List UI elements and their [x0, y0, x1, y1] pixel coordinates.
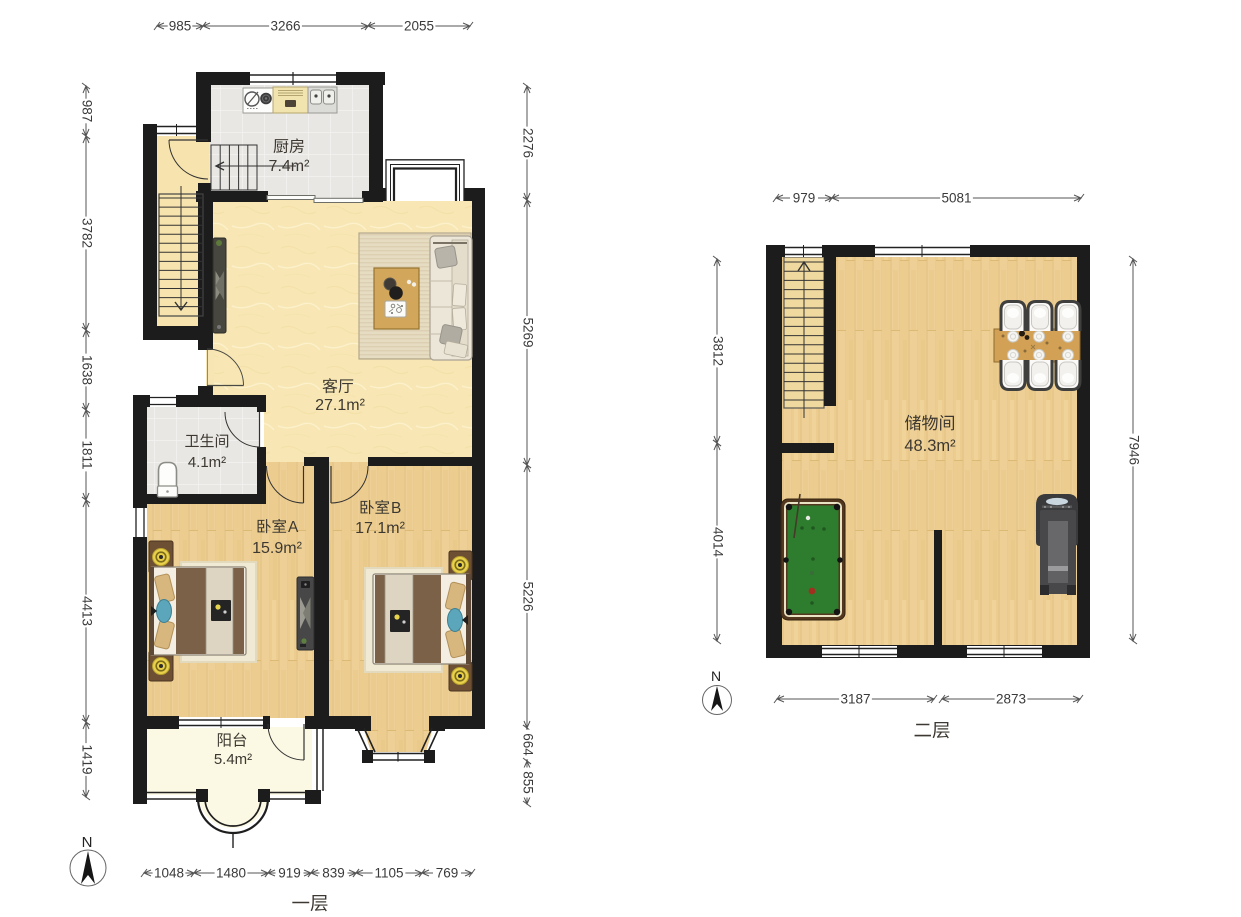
svg-text:1105: 1105 [374, 866, 403, 881]
svg-text:2873: 2873 [996, 692, 1026, 707]
svg-text:27.1m²: 27.1m² [315, 397, 365, 414]
svg-text:4413: 4413 [79, 596, 94, 626]
svg-text:1419: 1419 [79, 744, 94, 774]
svg-text:2055: 2055 [404, 19, 434, 34]
svg-text:1048: 1048 [154, 866, 184, 881]
svg-text:1811: 1811 [79, 440, 94, 469]
svg-text:3266: 3266 [270, 19, 300, 34]
svg-text:5.4m²: 5.4m² [214, 751, 252, 768]
svg-text:855: 855 [520, 771, 535, 794]
svg-text:979: 979 [793, 191, 816, 206]
svg-text:A: A [288, 519, 299, 536]
svg-text:4014: 4014 [710, 527, 725, 558]
svg-text:3812: 3812 [710, 336, 725, 366]
svg-text:664: 664 [520, 733, 535, 756]
svg-text:5269: 5269 [520, 317, 535, 347]
svg-text:48.3m²: 48.3m² [904, 437, 956, 455]
svg-text:5081: 5081 [941, 191, 971, 206]
svg-text:17.1m²: 17.1m² [355, 520, 405, 537]
svg-text:1480: 1480 [216, 866, 246, 881]
svg-text:987: 987 [79, 100, 94, 123]
svg-text:1638: 1638 [79, 355, 94, 385]
svg-text:3187: 3187 [840, 692, 870, 707]
svg-text:B: B [391, 500, 401, 517]
svg-text:4.1m²: 4.1m² [188, 454, 226, 471]
svg-text:919: 919 [278, 866, 301, 881]
svg-text:15.9m²: 15.9m² [252, 540, 302, 557]
svg-text:985: 985 [169, 19, 192, 34]
svg-text:2276: 2276 [520, 128, 535, 158]
svg-text:769: 769 [436, 866, 459, 881]
svg-text:5226: 5226 [520, 581, 535, 611]
svg-text:N: N [82, 834, 93, 851]
svg-text:839: 839 [322, 866, 345, 881]
svg-text:7946: 7946 [1126, 435, 1141, 465]
svg-text:3782: 3782 [79, 218, 94, 248]
svg-text:N: N [711, 668, 721, 684]
svg-text:7.4m²: 7.4m² [269, 158, 311, 175]
